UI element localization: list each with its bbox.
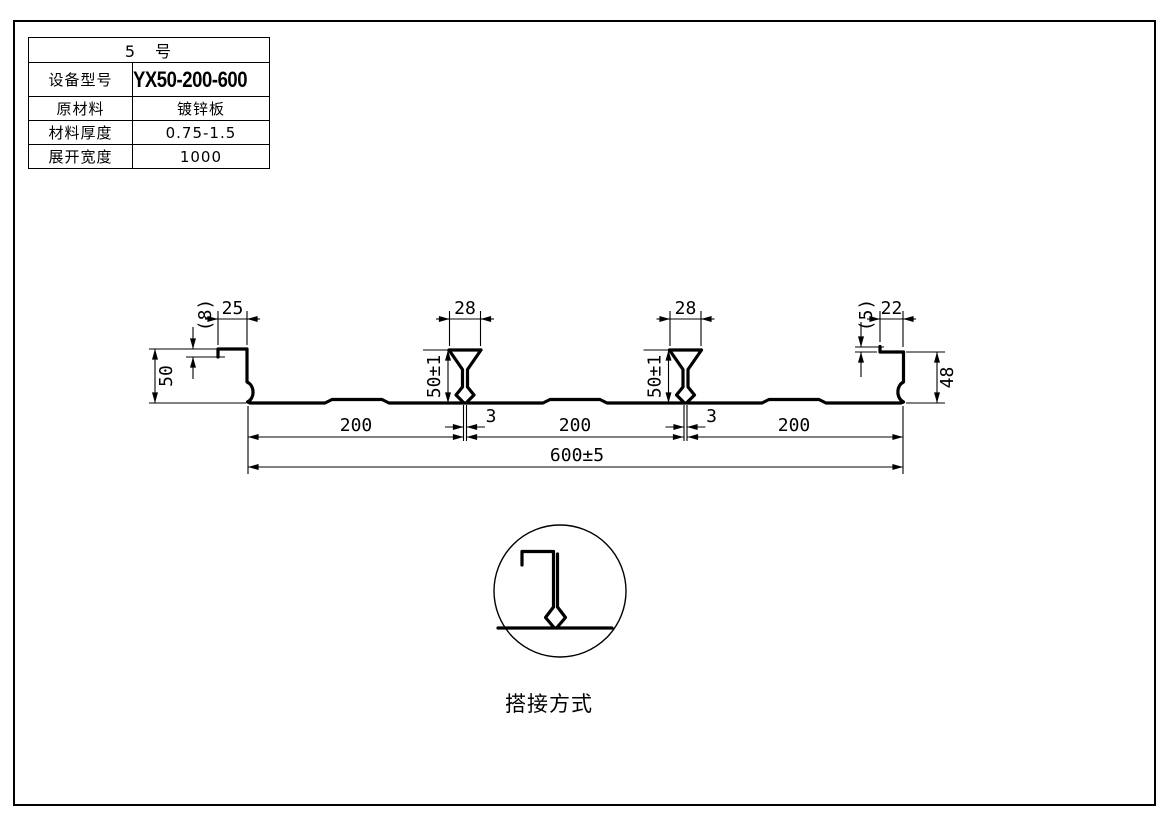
detail-seam-profile bbox=[522, 552, 566, 628]
profile-drawing: 50 (8) 25 28 50±1 bbox=[0, 0, 1169, 827]
dim-right-lip-label: 22 bbox=[881, 298, 903, 319]
dim-overall-label: 600±5 bbox=[550, 445, 604, 466]
rib-2 bbox=[670, 350, 702, 403]
detail-circle bbox=[494, 525, 626, 657]
drawing-sheet: 5 号 设备型号 YX50-200-600 原材料 镀锌板 材料厚度 0.75-… bbox=[0, 0, 1169, 827]
lap-joint-detail: 搭接方式 bbox=[494, 525, 626, 716]
cross-section bbox=[218, 347, 904, 404]
dim-rib1-height-label: 50±1 bbox=[424, 355, 445, 398]
detail-caption: 搭接方式 bbox=[505, 692, 593, 716]
dim-right-height: 48 bbox=[906, 352, 958, 403]
dim-rib2-width-label: 28 bbox=[675, 298, 697, 319]
dim-left-height-label: 50 bbox=[156, 365, 177, 387]
dim-rib2-slot-label: 3 bbox=[706, 406, 717, 427]
dim-right-height-label: 48 bbox=[937, 367, 958, 389]
dim-rib2-height-label: 50±1 bbox=[645, 355, 666, 398]
profile-outline bbox=[218, 347, 904, 404]
dim-right-hem-label: (5) bbox=[856, 299, 877, 332]
dim-span2-label: 200 bbox=[559, 415, 592, 436]
dim-rib1-slot: 3 bbox=[445, 405, 496, 441]
dim-rib2-height: 50±1 bbox=[644, 350, 673, 403]
dim-rib1-width-label: 28 bbox=[454, 298, 476, 319]
dim-rib1-width: 28 bbox=[436, 298, 494, 346]
rib-1 bbox=[449, 350, 481, 403]
dim-rib2-slot: 3 bbox=[666, 405, 717, 441]
dim-span1-label: 200 bbox=[340, 415, 373, 436]
dim-overall: 600±5 bbox=[248, 445, 903, 467]
dim-left-hem: (8) bbox=[186, 299, 225, 379]
dim-rib1-slot-label: 3 bbox=[486, 406, 497, 427]
dim-left-hem-label: (8) bbox=[195, 299, 216, 332]
dim-rib2-width: 28 bbox=[657, 298, 715, 346]
dim-rib1-height: 50±1 bbox=[423, 350, 452, 403]
dim-span3-label: 200 bbox=[778, 415, 811, 436]
dim-left-lip-label: 25 bbox=[222, 298, 244, 319]
